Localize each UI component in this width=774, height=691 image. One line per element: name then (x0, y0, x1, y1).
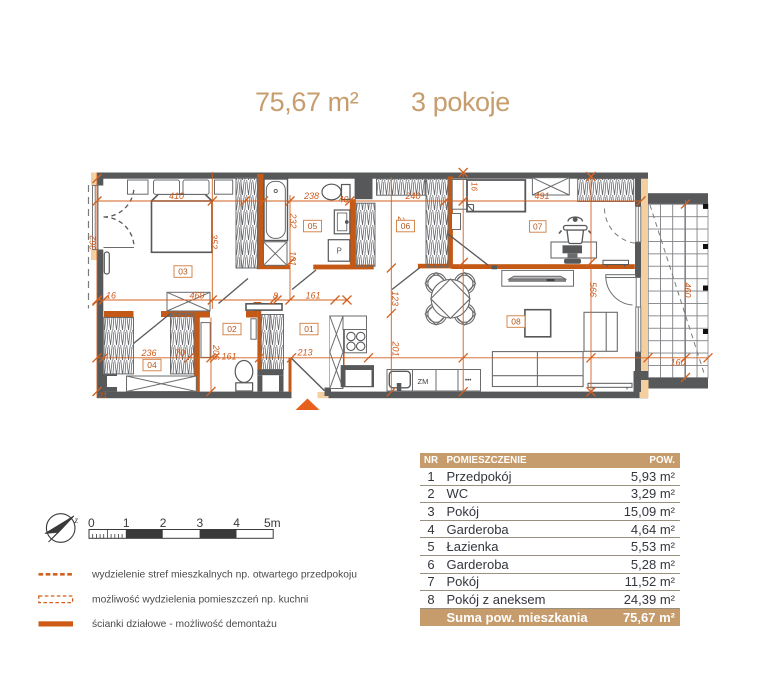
svg-text:240: 240 (404, 191, 420, 201)
svg-text:wydzielenie stref mieszkalnyc: wydzielenie stref mieszkalnych np. otwar… (91, 570, 357, 581)
svg-text:160: 160 (670, 358, 685, 368)
svg-text:238: 238 (303, 191, 319, 201)
svg-text:z: z (74, 515, 79, 525)
svg-text:201: 201 (391, 340, 401, 356)
svg-text:08: 08 (511, 317, 521, 327)
svg-text:•••: ••• (465, 378, 471, 384)
svg-text:ZM: ZM (418, 377, 429, 386)
svg-text:410: 410 (169, 191, 184, 201)
svg-text:5m: 5m (264, 516, 281, 530)
svg-text:02: 02 (227, 324, 237, 334)
svg-text:8: 8 (273, 291, 278, 301)
svg-text:491: 491 (534, 191, 549, 201)
svg-text:4: 4 (233, 516, 240, 530)
svg-text:469: 469 (189, 291, 204, 301)
svg-text:123: 123 (390, 291, 400, 306)
svg-text:206: 206 (211, 344, 221, 360)
svg-text:40: 40 (338, 195, 348, 205)
svg-text:1: 1 (123, 516, 130, 530)
svg-text:161: 161 (305, 291, 320, 301)
svg-text:07: 07 (533, 221, 543, 231)
svg-text:236: 236 (140, 348, 156, 358)
svg-text:352: 352 (209, 234, 219, 249)
svg-text:0: 0 (88, 516, 95, 530)
svg-text:05: 05 (308, 221, 318, 231)
svg-text:16: 16 (106, 291, 116, 301)
svg-text:16: 16 (470, 182, 479, 191)
svg-text:możliwość wydzielenia pomieszc: możliwość wydzielenia pomieszczeń np. ku… (92, 595, 308, 606)
svg-text:06: 06 (401, 221, 411, 231)
svg-text:04: 04 (147, 360, 157, 370)
svg-text:101: 101 (288, 251, 298, 266)
svg-text:566: 566 (588, 282, 598, 297)
svg-text:460: 460 (683, 282, 693, 297)
svg-text:3: 3 (197, 516, 204, 530)
svg-text:21: 21 (98, 391, 107, 400)
svg-text:03: 03 (178, 267, 188, 277)
svg-text:ścianki działowe - możliwość: ścianki działowe - możliwość demontażu (92, 619, 277, 630)
svg-text:P: P (337, 247, 342, 256)
svg-text:161: 161 (221, 352, 236, 362)
svg-text:362: 362 (88, 235, 98, 250)
svg-text:2: 2 (160, 516, 167, 530)
svg-text:232: 232 (288, 212, 298, 228)
svg-text:213: 213 (296, 348, 312, 358)
svg-text:01: 01 (304, 324, 314, 334)
svg-text:70: 70 (175, 348, 185, 358)
